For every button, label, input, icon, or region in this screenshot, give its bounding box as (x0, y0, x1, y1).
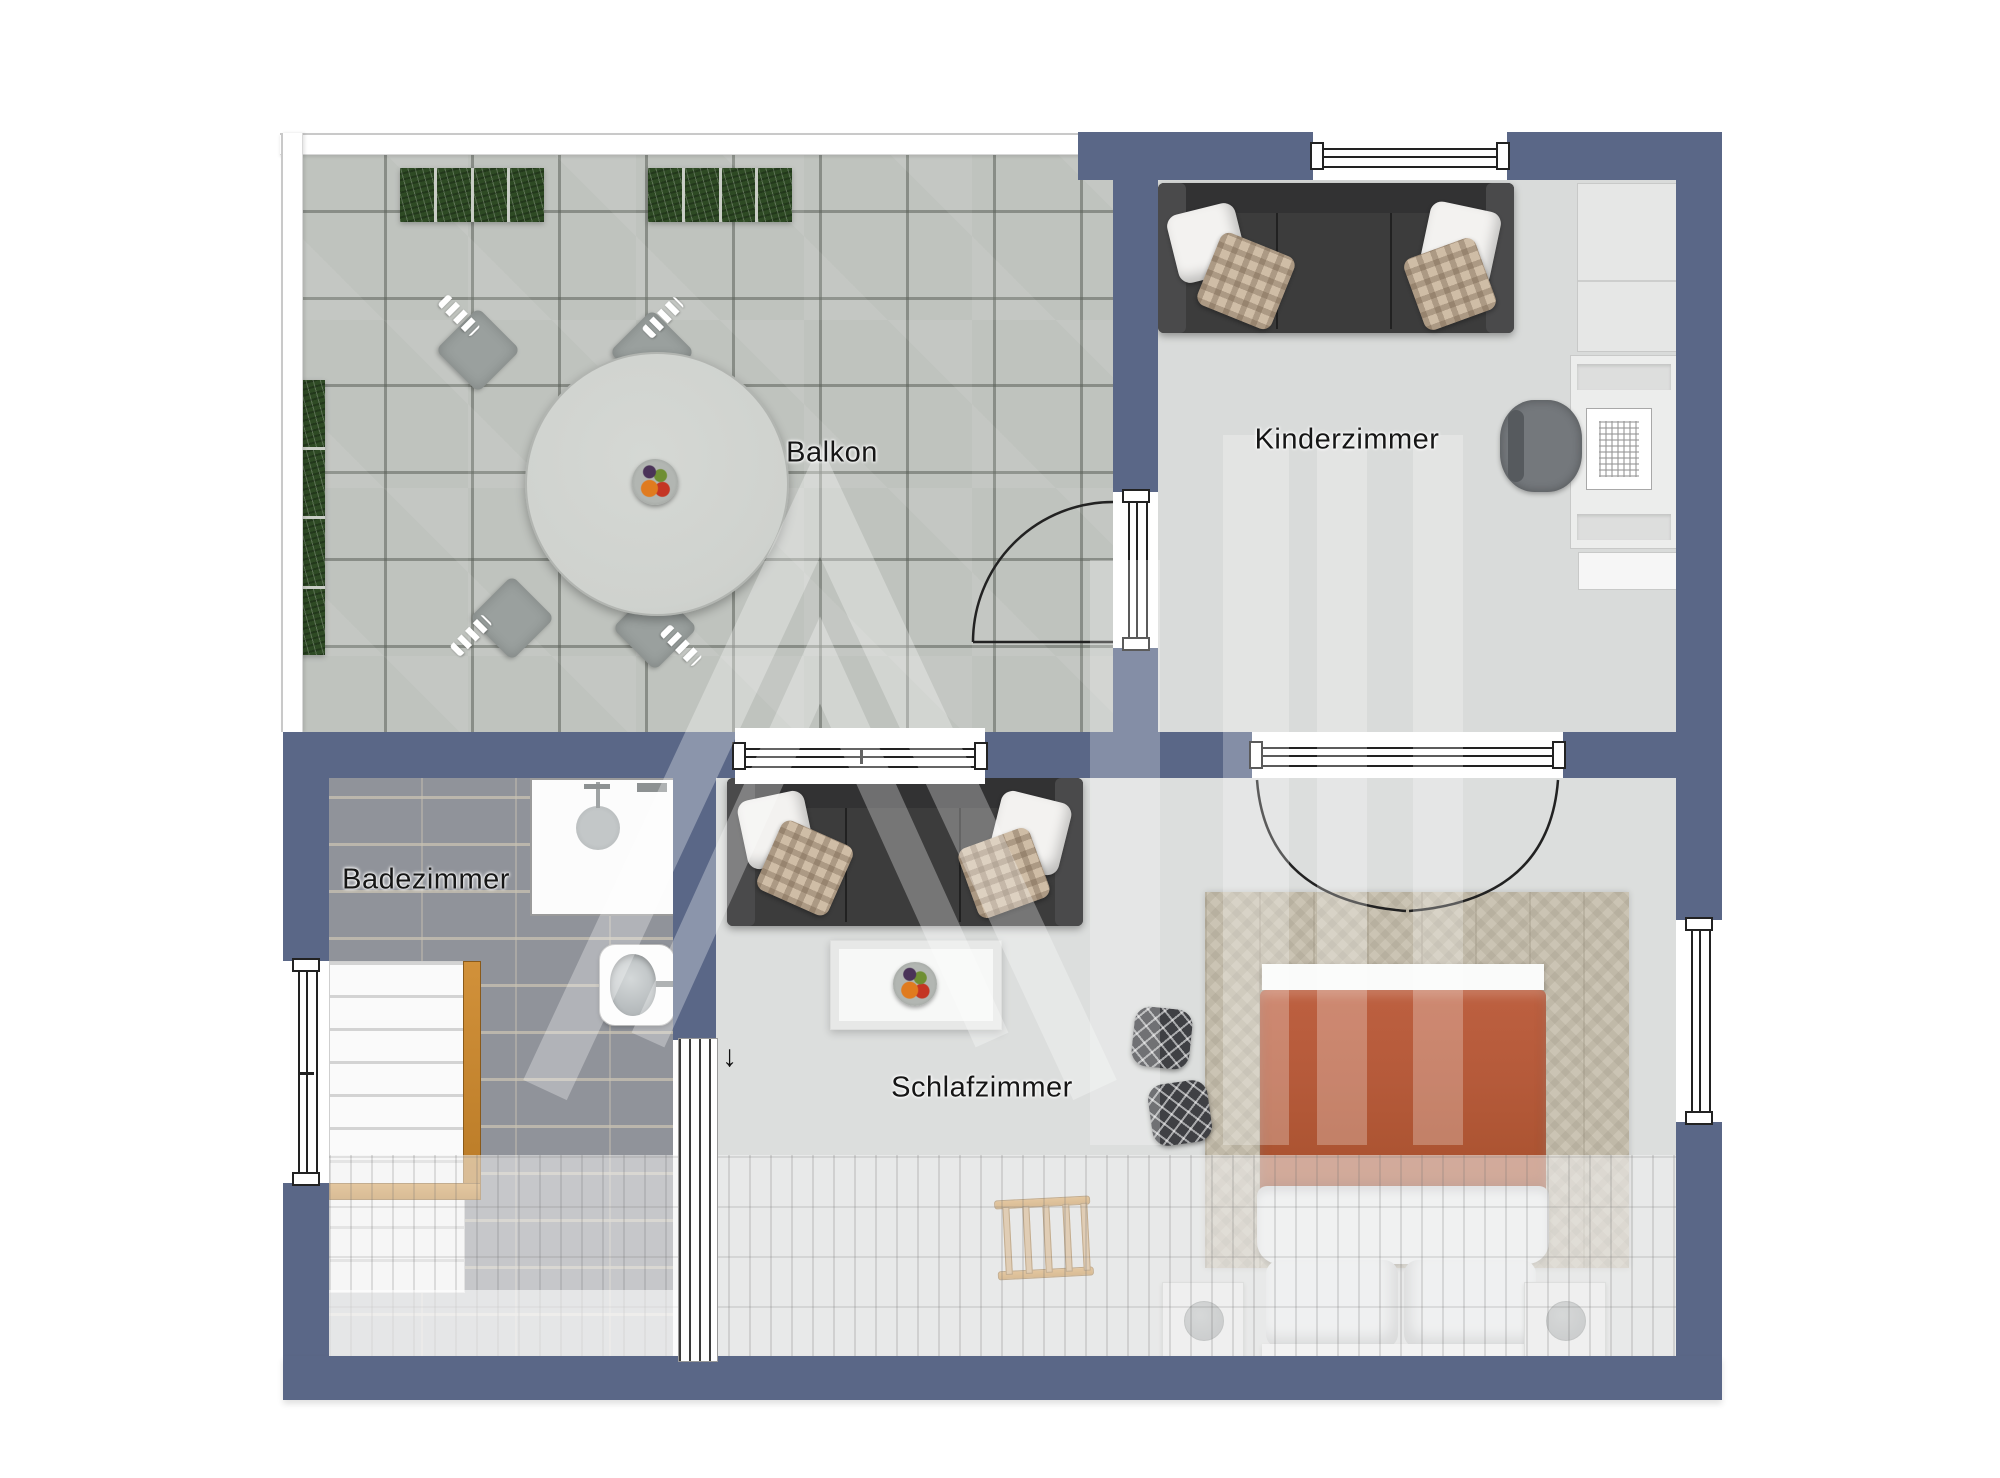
stair-railing-horizontal (329, 1183, 481, 1200)
wall-bottom (283, 1356, 1722, 1400)
bed-folded-sheet (1257, 1186, 1549, 1264)
window-jamb (974, 742, 988, 770)
door-leaf (1128, 498, 1148, 642)
kids-room-wardrobe (1577, 183, 1678, 352)
door-jamb (1249, 741, 1263, 769)
staircase (329, 961, 465, 1293)
decor-ladder (994, 1196, 1092, 1281)
balcony-door (1113, 492, 1158, 648)
wall-bath-bedroom-divider (673, 778, 716, 1040)
sink-basin (610, 954, 656, 1016)
desk-rail (1577, 514, 1671, 540)
wall-kids-top-left (1078, 132, 1313, 180)
table-lamp-icon (1546, 1301, 1586, 1341)
window-jamb (1310, 142, 1324, 170)
ladder-rung (1042, 1205, 1053, 1273)
double-door-opening (1252, 732, 1563, 778)
shower-head-icon (576, 806, 620, 850)
window-balcony-bedroom (735, 728, 985, 784)
kids-room-drawer-unit (1578, 552, 1678, 590)
planter-cell (510, 168, 544, 222)
double-door-leaves-closed (1260, 747, 1555, 767)
wall-divider-right (1563, 732, 1722, 778)
window-glazing (1691, 928, 1711, 1114)
laptop (1586, 408, 1652, 490)
window-jamb (1496, 142, 1510, 170)
window-jamb (1685, 1111, 1713, 1125)
fruit-bowl (893, 962, 937, 1006)
room-label-bathroom: Badezimmer (342, 864, 510, 897)
bed-pillow-right (1404, 1260, 1536, 1348)
window-jamb (1685, 917, 1713, 931)
shower-mixer-icon (584, 784, 610, 789)
pouf-ottoman (1130, 1005, 1194, 1071)
bathroom-sink (599, 944, 675, 1026)
shower-control-icon (637, 783, 667, 792)
floorplan-canvas: ↓ Balkon Kinderzimmer Badezimmer Schlafz… (0, 0, 2000, 1478)
window-mullion (860, 748, 863, 764)
nightstand-left (1162, 1282, 1244, 1358)
wall-left-lower (283, 1181, 329, 1360)
table-lamp-icon (1184, 1301, 1224, 1341)
room-label-bedroom: Schlafzimmer (891, 1072, 1073, 1105)
room-label-kids-room: Kinderzimmer (1255, 424, 1440, 457)
wall-divider-left (283, 732, 735, 778)
wardrobe-divider (1578, 280, 1677, 282)
bed-head-shelf (1262, 964, 1544, 990)
wall-balcony-right-upper (1113, 180, 1158, 492)
planter-box-top-left (400, 168, 544, 222)
ladder-rung (1062, 1204, 1073, 1272)
planter-cell (400, 168, 434, 222)
stair-railing-vertical (463, 961, 481, 1200)
window-kids-room-top (1313, 132, 1507, 180)
balcony-railing-top (280, 133, 1080, 155)
planter-cell (722, 168, 756, 222)
window-jamb (292, 1172, 320, 1186)
shower (530, 778, 675, 916)
stairs-direction-arrow: ↓ (722, 1042, 737, 1072)
room-label-balcony: Balkon (786, 437, 878, 470)
planter-cell (758, 168, 792, 222)
window-jamb (292, 958, 320, 972)
wall-balcony-right-lower (1113, 648, 1158, 736)
door-jamb (1552, 741, 1566, 769)
sliding-door (678, 1038, 718, 1362)
desk-chair (1500, 400, 1582, 492)
window-glazing (1321, 148, 1499, 168)
nightstand-right (1524, 1282, 1606, 1358)
planter-cell (685, 168, 719, 222)
window-bathroom-left (283, 961, 329, 1183)
wall-left-upper (283, 732, 329, 963)
window-jamb (732, 742, 746, 770)
wall-divider-center (985, 732, 1252, 778)
door-jamb (1122, 489, 1150, 503)
desk-chair-backrest (1508, 410, 1524, 482)
window-bedroom-right (1676, 920, 1722, 1122)
pouf-ottoman (1146, 1078, 1214, 1148)
planter-box-top-right (648, 168, 792, 222)
door-jamb (1122, 637, 1150, 651)
balcony-railing-left (281, 133, 303, 732)
bed-duvet (1260, 990, 1546, 1192)
planter-cell (474, 168, 508, 222)
ladder-rung (1022, 1206, 1033, 1274)
desk-rail (1577, 364, 1671, 390)
planter-cell (648, 168, 682, 222)
window-mullion (298, 1072, 314, 1075)
planter-cell (437, 168, 471, 222)
ladder-rung (1002, 1207, 1013, 1275)
wall-right-upper (1676, 132, 1722, 922)
bed-pillow-left (1266, 1260, 1398, 1348)
sofa-cushion-divider (1390, 213, 1392, 329)
fruit-bowl (632, 459, 678, 505)
roof-eaves-strip (329, 1290, 679, 1358)
